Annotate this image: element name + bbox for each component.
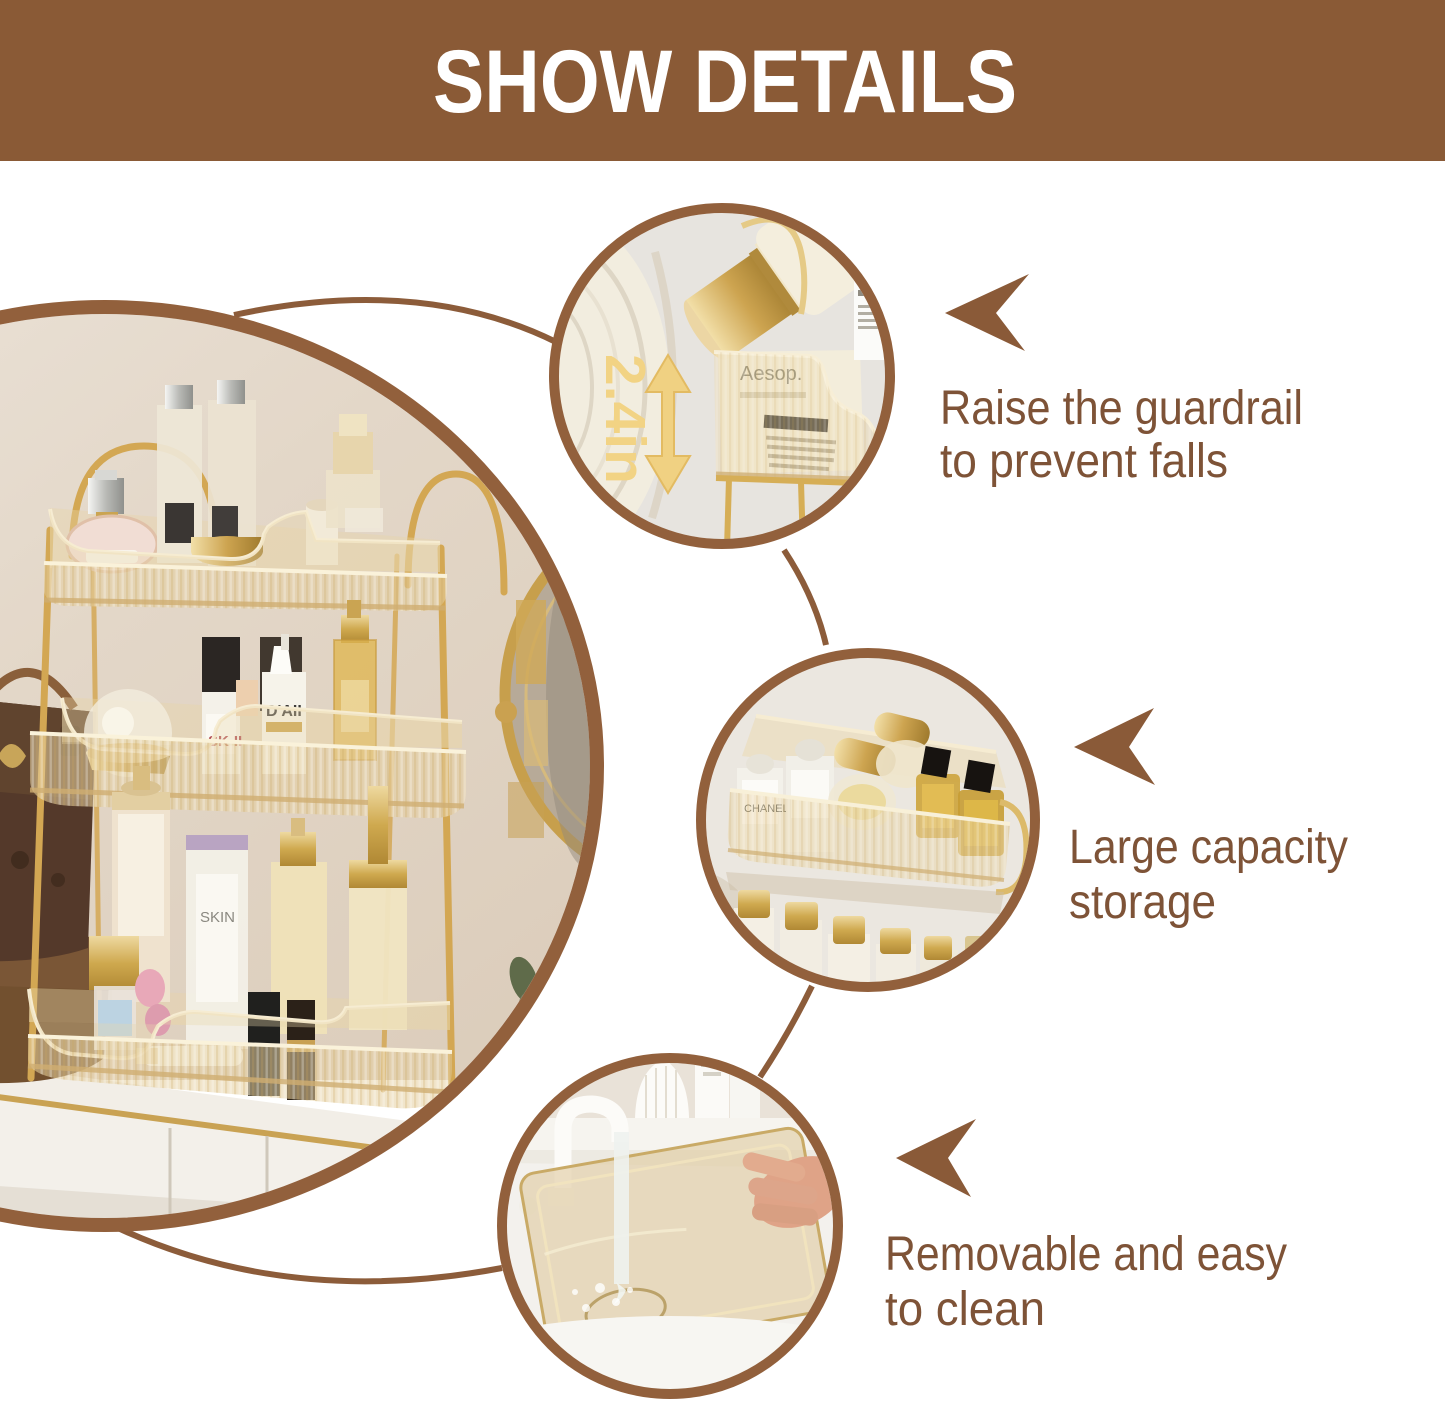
svg-text:Removable and easy: Removable and easy (885, 1228, 1287, 1281)
svg-text:SKIN: SKIN (200, 909, 235, 926)
svg-text:to clean: to clean (885, 1283, 1045, 1336)
svg-text:Raise the guardrail: Raise the guardrail (940, 382, 1303, 435)
svg-text:Large capacity: Large capacity (1069, 821, 1348, 874)
svg-text:to prevent falls: to prevent falls (940, 435, 1228, 488)
svg-text:2.4in: 2.4in (593, 354, 657, 484)
svg-text:storage: storage (1069, 876, 1216, 929)
svg-text:SHOW DETAILS: SHOW DETAILS (433, 31, 1017, 131)
